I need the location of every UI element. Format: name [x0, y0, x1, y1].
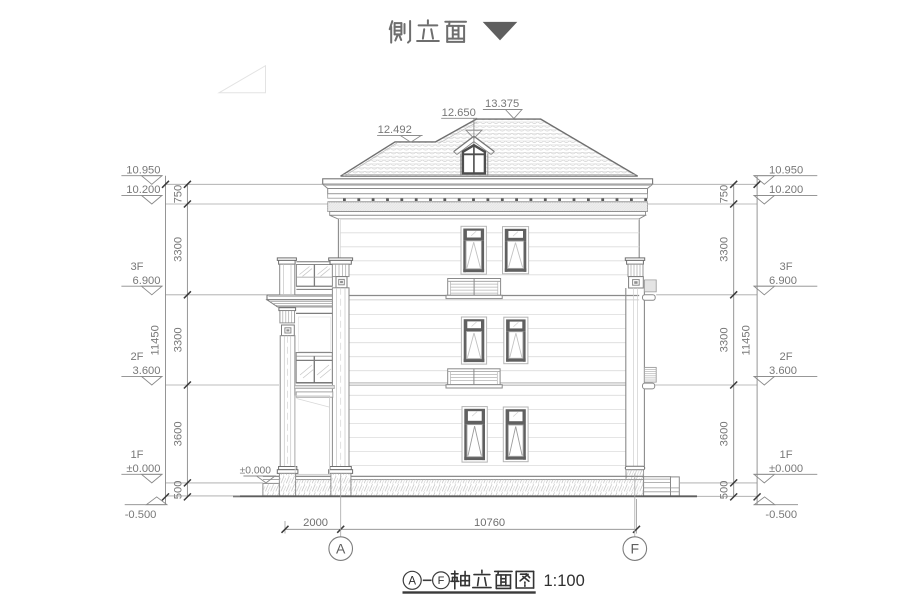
svg-text:F: F — [631, 540, 640, 556]
svg-text:12.492: 12.492 — [378, 124, 412, 136]
svg-text:3300: 3300 — [173, 327, 185, 352]
svg-text:10.200: 10.200 — [769, 184, 803, 196]
svg-text:10.200: 10.200 — [126, 184, 160, 196]
svg-text:-0.500: -0.500 — [125, 509, 157, 521]
svg-text:11450: 11450 — [150, 325, 162, 355]
svg-text:1F: 1F — [780, 449, 793, 461]
svg-text:750: 750 — [173, 185, 185, 204]
svg-text:3F: 3F — [130, 261, 143, 273]
svg-text:3300: 3300 — [719, 327, 731, 352]
svg-text:6.900: 6.900 — [769, 275, 797, 287]
svg-text:3300: 3300 — [173, 237, 185, 262]
svg-text:3600: 3600 — [719, 421, 731, 446]
svg-text:13.375: 13.375 — [485, 98, 519, 110]
svg-text:500: 500 — [719, 481, 731, 500]
svg-text:3.600: 3.600 — [769, 365, 797, 377]
svg-text:-0.500: -0.500 — [765, 509, 797, 521]
svg-text:1:100: 1:100 — [544, 572, 585, 590]
svg-text:3600: 3600 — [173, 421, 185, 446]
svg-text:10760: 10760 — [474, 517, 505, 529]
svg-text:2000: 2000 — [303, 517, 328, 529]
svg-text:3.600: 3.600 — [133, 365, 161, 377]
svg-text:12.650: 12.650 — [442, 107, 476, 119]
svg-text:10.950: 10.950 — [769, 164, 803, 176]
svg-text:A: A — [336, 540, 346, 556]
svg-text:2F: 2F — [130, 351, 143, 363]
svg-text:750: 750 — [719, 185, 731, 204]
svg-text:±0.000: ±0.000 — [769, 463, 803, 475]
svg-text:±0.000: ±0.000 — [126, 463, 160, 475]
svg-text:3300: 3300 — [719, 237, 731, 262]
svg-text:A: A — [408, 575, 416, 587]
svg-text:1F: 1F — [130, 449, 143, 461]
svg-text:3F: 3F — [780, 261, 793, 273]
svg-text:F: F — [438, 575, 445, 587]
svg-text:±0.000: ±0.000 — [240, 465, 272, 476]
svg-text:500: 500 — [173, 481, 185, 500]
svg-text:11450: 11450 — [741, 325, 753, 355]
svg-text:10.950: 10.950 — [126, 164, 160, 176]
svg-text:2F: 2F — [780, 351, 793, 363]
svg-text:6.900: 6.900 — [133, 275, 161, 287]
